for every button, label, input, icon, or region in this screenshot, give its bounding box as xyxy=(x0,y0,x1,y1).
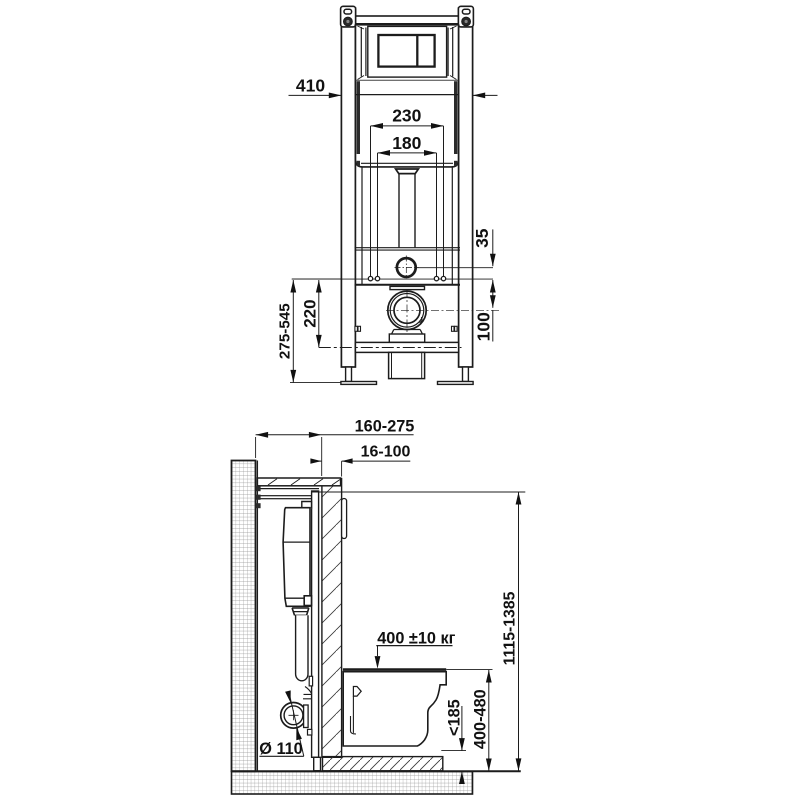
svg-text:<185: <185 xyxy=(445,699,463,736)
svg-text:160-275: 160-275 xyxy=(355,418,415,436)
svg-text:400-480: 400-480 xyxy=(471,689,489,749)
svg-text:230: 230 xyxy=(392,105,421,125)
svg-text:35: 35 xyxy=(472,228,492,248)
svg-text:220: 220 xyxy=(301,299,320,327)
svg-text:100: 100 xyxy=(474,312,494,341)
svg-text:180: 180 xyxy=(392,133,421,153)
svg-text:16-100: 16-100 xyxy=(361,444,411,461)
svg-text:1115-1385: 1115-1385 xyxy=(502,591,519,665)
svg-text:410: 410 xyxy=(296,75,325,95)
svg-text:Ø 110: Ø 110 xyxy=(259,740,302,758)
svg-text:400 ±10 кг: 400 ±10 кг xyxy=(377,629,455,647)
svg-text:275-545: 275-545 xyxy=(277,303,294,359)
